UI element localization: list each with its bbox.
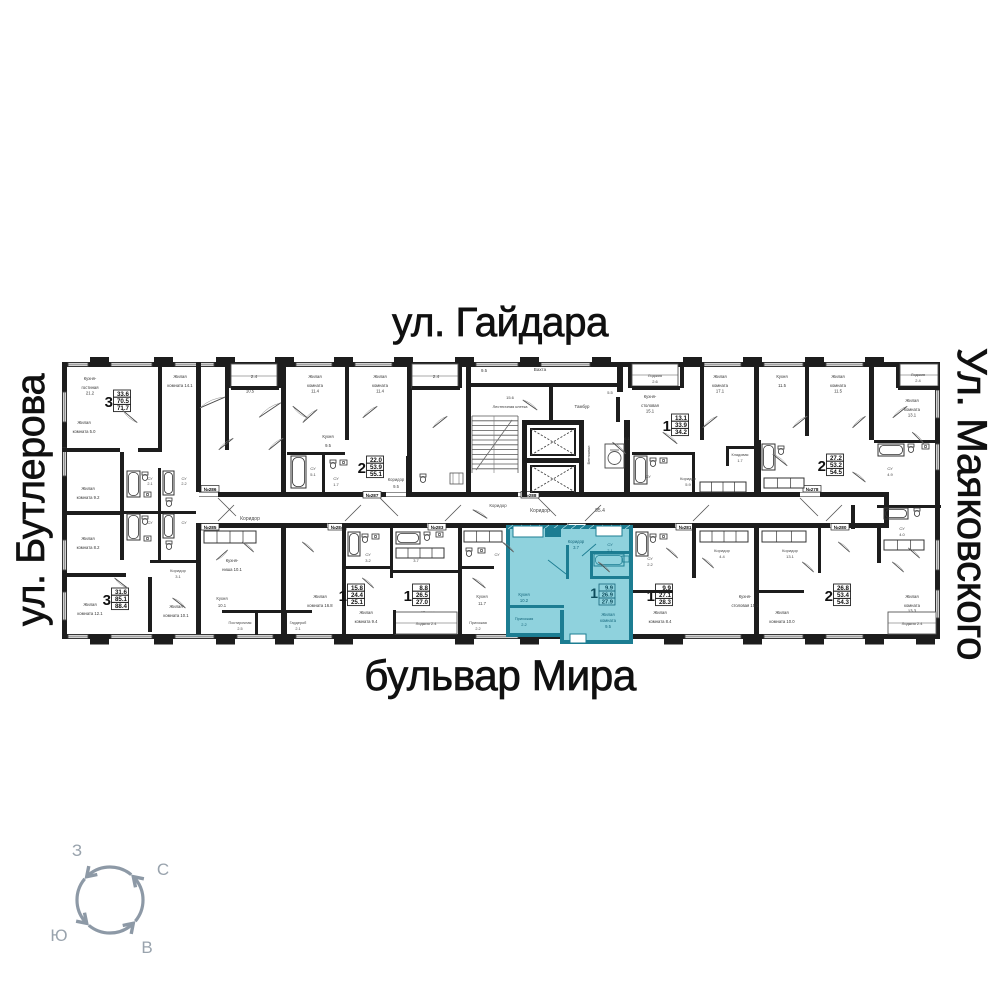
svg-text:столовая 15.1: столовая 15.1: [731, 603, 759, 608]
svg-text:Лоджия: Лоджия: [911, 372, 925, 377]
svg-text:2.2: 2.2: [475, 627, 480, 631]
svg-text:бульвар Мира: бульвар Мира: [364, 653, 637, 700]
svg-text:Лоджия 2.4: Лоджия 2.4: [416, 621, 438, 626]
svg-text:Прихожая: Прихожая: [515, 616, 534, 621]
svg-text:Жилая: Жилая: [905, 594, 918, 599]
svg-text:№286: №286: [204, 487, 217, 492]
svg-text:Кухня-: Кухня-: [226, 558, 239, 563]
svg-text:СУ: СУ: [365, 552, 371, 557]
svg-text:Ул. Маяковского: Ул. Маяковского: [949, 348, 996, 660]
svg-text:Жилая: Жилая: [81, 536, 94, 541]
svg-text:комната: комната: [830, 383, 847, 388]
svg-text:Коридор: Коридор: [170, 568, 187, 573]
svg-text:54.3: 54.3: [837, 599, 850, 606]
svg-text:Кухня: Кухня: [322, 434, 333, 439]
svg-text:Кухня: Кухня: [776, 374, 787, 379]
svg-text:комната: комната: [712, 383, 729, 388]
svg-text:Лестничная клетка: Лестничная клетка: [492, 404, 528, 409]
svg-text:Лоджия 2.4: Лоджия 2.4: [902, 621, 924, 626]
svg-text:9.9: 9.9: [605, 586, 614, 592]
svg-text:11.4: 11.4: [376, 388, 385, 393]
svg-text:5.9: 5.9: [685, 482, 691, 487]
svg-text:13.1: 13.1: [675, 415, 688, 422]
svg-text:13.1: 13.1: [908, 412, 917, 417]
svg-text:Жилая: Жилая: [653, 610, 666, 615]
svg-text:№278: №278: [806, 487, 819, 492]
svg-text:СУ: СУ: [147, 477, 153, 481]
svg-text:9.5: 9.5: [325, 443, 331, 448]
svg-text:Лоджия: Лоджия: [648, 373, 662, 378]
svg-text:Жилая: Жилая: [359, 610, 372, 615]
svg-text:22.0: 22.0: [370, 457, 383, 464]
svg-text:3: 3: [103, 592, 111, 609]
svg-text:комната 10.1: комната 10.1: [163, 613, 189, 618]
svg-text:13.1: 13.1: [786, 554, 795, 559]
svg-text:2.6: 2.6: [652, 379, 658, 384]
svg-text:3.1: 3.1: [175, 574, 181, 579]
svg-text:1.7: 1.7: [333, 482, 339, 487]
svg-text:2: 2: [818, 458, 826, 475]
svg-text:2.2: 2.2: [521, 622, 527, 627]
svg-text:6.1: 6.1: [624, 436, 630, 441]
svg-text:33.6: 33.6: [117, 391, 130, 398]
svg-text:СУ: СУ: [645, 474, 651, 479]
svg-text:Жилая: Жилая: [831, 374, 844, 379]
svg-text:Гардероб: Гардероб: [290, 621, 308, 625]
svg-text:Ю: Ю: [50, 926, 67, 945]
svg-text:4.9: 4.9: [887, 472, 893, 477]
svg-text:СУ: СУ: [310, 466, 316, 471]
svg-text:25.1: 25.1: [351, 599, 364, 606]
svg-text:комната: комната: [307, 383, 324, 388]
svg-text:11.5: 11.5: [834, 388, 843, 393]
svg-text:2.4: 2.4: [433, 374, 440, 379]
svg-text:5.5: 5.5: [607, 390, 613, 395]
svg-text:СУ: СУ: [494, 553, 500, 557]
svg-text:СУ: СУ: [147, 521, 153, 525]
svg-text:комната 5.0: комната 5.0: [73, 429, 96, 434]
svg-text:1: 1: [404, 588, 412, 605]
svg-text:21.2: 21.2: [86, 390, 95, 395]
svg-text:15.6: 15.6: [506, 395, 515, 400]
svg-text:3.2: 3.2: [365, 558, 371, 563]
svg-text:9.5: 9.5: [481, 368, 488, 373]
svg-text:Коридор: Коридор: [489, 503, 507, 508]
svg-text:2: 2: [358, 460, 366, 477]
svg-text:ул. Бутлерова: ул. Бутлерова: [9, 373, 53, 626]
svg-text:№285: №285: [204, 525, 217, 530]
svg-text:СУ: СУ: [607, 542, 613, 547]
svg-text:2.2: 2.2: [647, 562, 653, 567]
svg-text:11.7: 11.7: [478, 601, 487, 606]
svg-text:комната: комната: [904, 407, 921, 412]
svg-text:10.2: 10.2: [520, 598, 529, 603]
svg-text:Жилая: Жилая: [775, 610, 788, 615]
svg-text:Коридор: Коридор: [782, 548, 799, 553]
svg-text:Жилая: Жилая: [313, 594, 326, 599]
svg-text:гостиная: гостиная: [81, 385, 98, 390]
svg-text:2.5: 2.5: [237, 627, 242, 631]
svg-text:Кухня-: Кухня-: [739, 594, 752, 599]
svg-text:СУ: СУ: [647, 556, 653, 561]
svg-text:55.1: 55.1: [370, 471, 383, 478]
svg-text:Жилая: Жилая: [77, 420, 90, 425]
svg-text:9.5: 9.5: [393, 484, 399, 489]
svg-text:3: 3: [105, 394, 113, 411]
svg-text:95.4: 95.4: [595, 508, 605, 514]
svg-text:комната 9.4: комната 9.4: [355, 619, 378, 624]
svg-text:9.5: 9.5: [605, 624, 611, 629]
svg-text:4.0: 4.0: [899, 532, 905, 537]
svg-text:№287: №287: [366, 493, 379, 498]
svg-text:комната 8.4: комната 8.4: [649, 619, 672, 624]
svg-text:88.4: 88.4: [115, 603, 128, 610]
svg-text:15.1: 15.1: [646, 408, 655, 413]
svg-text:№281: №281: [679, 525, 692, 530]
svg-text:2.2: 2.2: [181, 482, 186, 486]
svg-text:Кухня-: Кухня-: [644, 394, 657, 399]
svg-text:17.1: 17.1: [716, 388, 725, 393]
svg-text:4.4: 4.4: [719, 554, 725, 559]
svg-text:Кухня: Кухня: [476, 594, 487, 599]
svg-text:комната: комната: [904, 603, 921, 608]
svg-text:Вентканал: Вентканал: [587, 446, 591, 465]
svg-text:В: В: [141, 938, 152, 957]
svg-text:№280: №280: [834, 525, 847, 530]
svg-text:Жилая: Жилая: [601, 612, 614, 617]
svg-text:№284: №284: [331, 525, 344, 530]
svg-text:комната 16.8: комната 16.8: [307, 603, 333, 608]
svg-text:Постирочная: Постирочная: [229, 621, 252, 625]
svg-text:2.4: 2.4: [915, 378, 921, 383]
svg-text:Кухня-: Кухня-: [84, 376, 97, 381]
svg-text:Жилая: Жилая: [173, 374, 186, 379]
svg-text:СУ: СУ: [181, 477, 187, 481]
svg-text:Коридор: Коридор: [530, 508, 550, 514]
svg-text:28.3: 28.3: [659, 599, 672, 606]
svg-text:Прихожая: Прихожая: [469, 621, 487, 625]
svg-text:3.7: 3.7: [573, 545, 579, 550]
svg-text:Кухня: Кухня: [518, 592, 529, 597]
svg-text:Вахта: Вахта: [534, 367, 547, 372]
svg-text:комната: комната: [600, 618, 617, 623]
svg-text:2.1: 2.1: [607, 548, 613, 553]
svg-text:10.1: 10.1: [218, 603, 227, 608]
svg-text:Кухня: Кухня: [216, 596, 227, 601]
svg-text:Коридор: Коридор: [680, 476, 697, 481]
svg-text:№283: №283: [431, 525, 444, 530]
svg-text:Тамбур: Тамбур: [575, 404, 590, 409]
svg-text:Жилая: Жилая: [81, 486, 94, 491]
svg-text:столовая: столовая: [641, 403, 659, 408]
svg-text:11.5: 11.5: [778, 383, 787, 388]
svg-text:Жилая: Жилая: [83, 602, 96, 607]
svg-text:З: З: [72, 841, 82, 860]
svg-text:СУ: СУ: [333, 476, 339, 481]
svg-text:СУ: СУ: [899, 526, 905, 531]
svg-text:1.7: 1.7: [737, 459, 742, 463]
svg-text:Коридор: Коридор: [388, 477, 405, 482]
svg-text:ул. Гайдара: ул. Гайдара: [392, 299, 609, 345]
svg-text:1: 1: [590, 585, 598, 601]
svg-text:2.1: 2.1: [295, 627, 300, 631]
svg-text:Жилая: Жилая: [308, 374, 321, 379]
svg-text:Кладовая: Кладовая: [731, 453, 748, 457]
svg-text:комната 9.2: комната 9.2: [77, 495, 100, 500]
svg-text:СУ: СУ: [887, 466, 893, 471]
svg-text:комната 8.2: комната 8.2: [77, 545, 100, 550]
svg-text:комната 10.0: комната 10.0: [769, 619, 795, 624]
svg-text:СУ: СУ: [181, 521, 187, 525]
svg-text:Жилая: Жилая: [373, 374, 386, 379]
svg-text:комната: комната: [372, 383, 389, 388]
svg-text:Жилая: Жилая: [713, 374, 726, 379]
svg-text:27.9: 27.9: [602, 600, 614, 606]
svg-text:С: С: [157, 860, 169, 879]
svg-text:ниша 10.1: ниша 10.1: [222, 567, 242, 572]
svg-text:26.9: 26.9: [602, 593, 614, 599]
svg-text:54.5: 54.5: [830, 469, 843, 476]
svg-text:Жилая: Жилая: [905, 398, 918, 403]
svg-text:2: 2: [825, 588, 833, 605]
svg-text:Коридор: Коридор: [714, 548, 731, 553]
svg-text:27.0: 27.0: [416, 599, 429, 606]
svg-text:Коридор: Коридор: [568, 539, 585, 544]
svg-text:5.1: 5.1: [310, 472, 316, 477]
svg-text:3.7: 3.7: [413, 558, 419, 563]
svg-text:2.4: 2.4: [251, 374, 258, 379]
svg-text:1: 1: [339, 588, 347, 605]
svg-text:34.2: 34.2: [675, 429, 688, 436]
svg-text:Коридор: Коридор: [240, 516, 260, 522]
svg-text:комната 12.1: комната 12.1: [77, 611, 103, 616]
svg-text:11.4: 11.4: [311, 388, 320, 393]
svg-text:27.2: 27.2: [830, 455, 843, 462]
svg-text:комната 14.1: комната 14.1: [167, 383, 193, 388]
svg-text:2.1: 2.1: [147, 482, 152, 486]
